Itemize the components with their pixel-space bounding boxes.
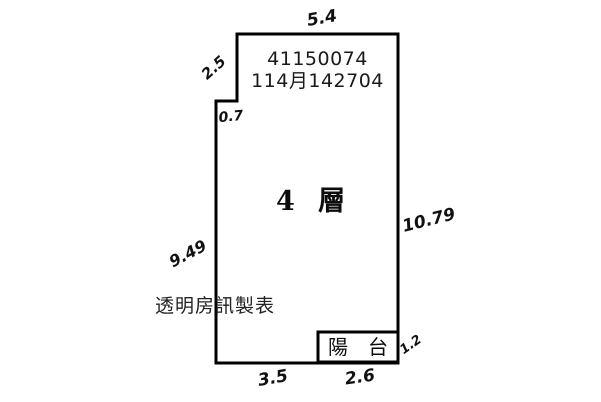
unit-id-block: 41150074 114月142704 <box>237 48 398 92</box>
unit-number: 41150074 <box>237 48 398 70</box>
floor-plan: 41150074 114月142704 4 層 陽 台 透明房訊製表 5.4 2… <box>0 0 601 402</box>
floor-label: 4 層 <box>276 188 352 215</box>
dimension-bottom-right: 2.6 <box>344 367 376 388</box>
balcony-label: 陽 台 <box>318 333 398 361</box>
watermark-label: 透明房訊製表 <box>155 297 275 316</box>
registry-code: 114月142704 <box>237 70 398 92</box>
dimension-notch: 0.7 <box>218 109 244 126</box>
